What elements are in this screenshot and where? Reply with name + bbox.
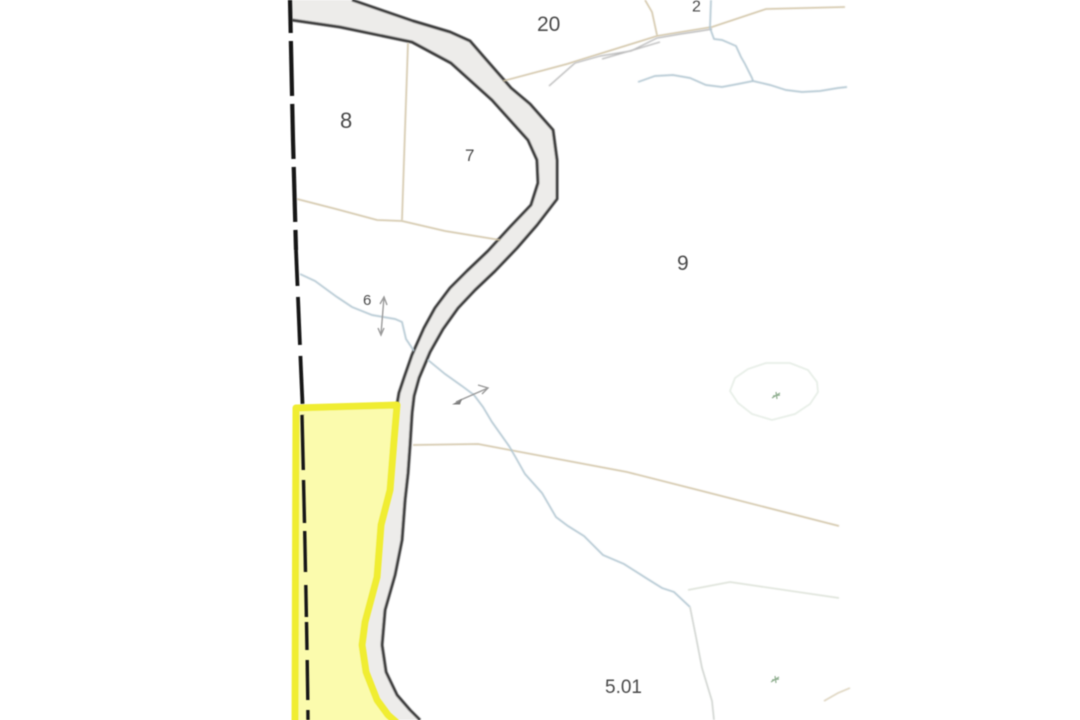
svg-text:8: 8: [340, 108, 352, 133]
svg-text:7: 7: [465, 146, 474, 165]
svg-text:5.01: 5.01: [605, 677, 642, 698]
svg-text:2: 2: [692, 0, 701, 16]
svg-text:20: 20: [537, 13, 560, 36]
svg-text:9: 9: [677, 252, 689, 275]
svg-text:6: 6: [363, 292, 371, 309]
